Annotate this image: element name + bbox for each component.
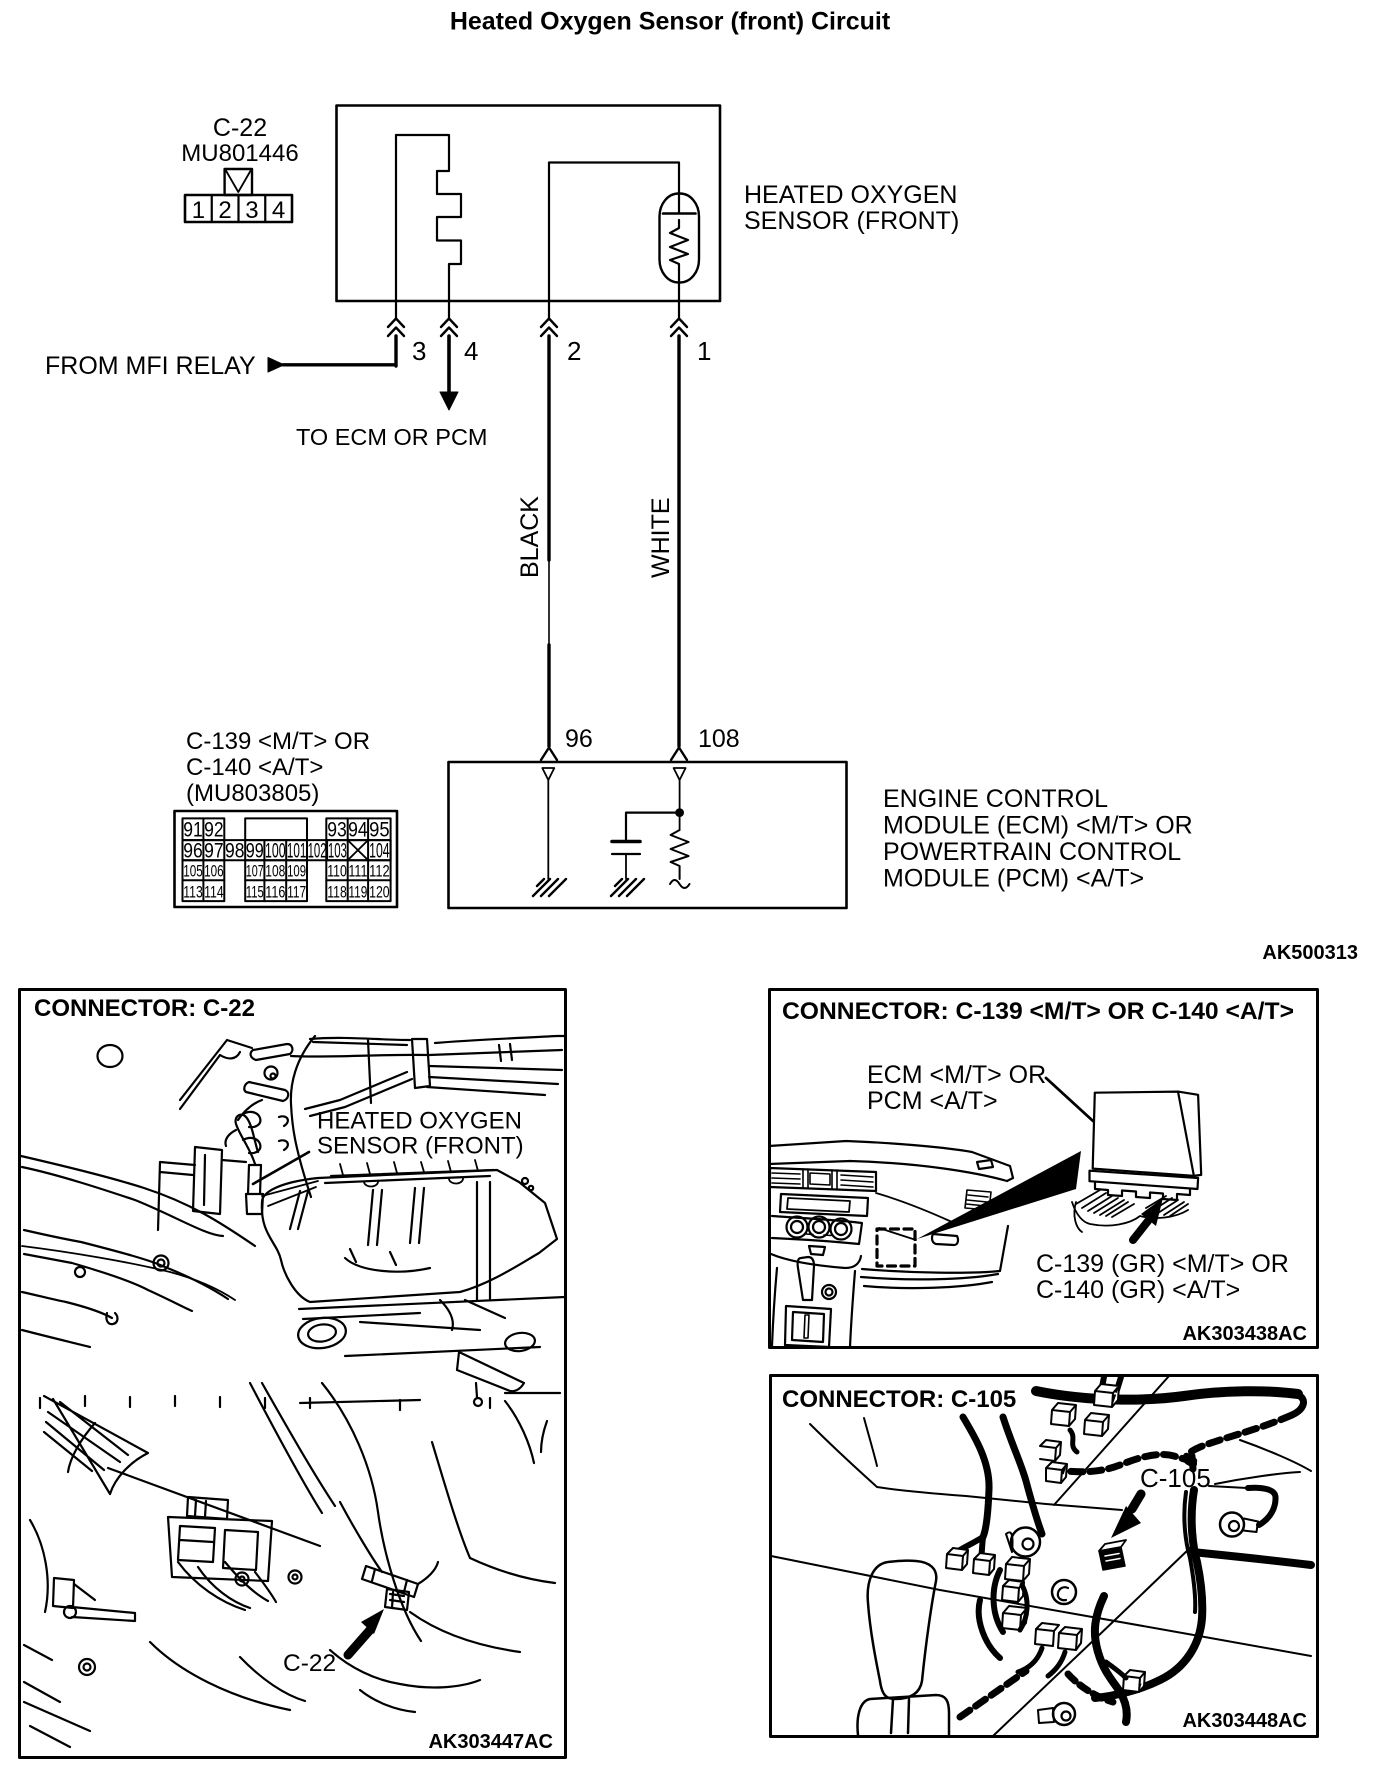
svg-text:114: 114 (204, 883, 224, 902)
svg-text:96: 96 (183, 839, 203, 863)
svg-text:1: 1 (192, 197, 205, 224)
svg-text:4: 4 (464, 336, 478, 366)
svg-text:C-140 (GR) <A/T>: C-140 (GR) <A/T> (1036, 1276, 1240, 1304)
svg-text:4: 4 (272, 197, 285, 224)
svg-text:ENGINE CONTROL: ENGINE CONTROL (883, 785, 1108, 813)
svg-text:Heated Oxygen Sensor (front) C: Heated Oxygen Sensor (front) Circuit (450, 8, 891, 36)
svg-text:(MU803805): (MU803805) (186, 780, 319, 807)
svg-text:108: 108 (698, 725, 740, 753)
svg-text:C-105: C-105 (1140, 1463, 1211, 1493)
svg-text:1: 1 (697, 336, 711, 366)
svg-text:106: 106 (204, 862, 224, 881)
svg-text:100: 100 (265, 839, 286, 863)
svg-text:109: 109 (287, 862, 306, 881)
svg-text:118: 118 (327, 883, 347, 902)
svg-text:107: 107 (246, 862, 264, 881)
svg-text:BLACK: BLACK (516, 496, 544, 578)
svg-text:119: 119 (348, 883, 367, 902)
svg-text:CONNECTOR: C-105: CONNECTOR: C-105 (782, 1386, 1016, 1413)
svg-text:98: 98 (225, 839, 245, 863)
svg-text:97: 97 (204, 839, 224, 863)
svg-text:116: 116 (265, 883, 285, 902)
svg-text:C-140 <A/T>: C-140 <A/T> (186, 754, 323, 781)
svg-text:MODULE (PCM) <A/T>: MODULE (PCM) <A/T> (883, 865, 1144, 893)
svg-text:99: 99 (246, 839, 264, 863)
svg-text:AK500313: AK500313 (1262, 942, 1358, 964)
svg-text:102: 102 (308, 839, 327, 863)
svg-text:C-139 <M/T> OR: C-139 <M/T> OR (186, 728, 370, 755)
svg-text:AK303438AC: AK303438AC (1182, 1323, 1307, 1345)
svg-text:C-139 (GR) <M/T> OR: C-139 (GR) <M/T> OR (1036, 1250, 1289, 1278)
svg-text:HEATED OXYGEN: HEATED OXYGEN (744, 181, 957, 209)
svg-text:AK303448AC: AK303448AC (1182, 1710, 1307, 1732)
svg-text:C-22: C-22 (283, 1650, 336, 1677)
svg-text:94: 94 (348, 818, 368, 842)
svg-text:MODULE (ECM) <M/T> OR: MODULE (ECM) <M/T> OR (883, 812, 1193, 840)
svg-text:TO ECM OR PCM: TO ECM OR PCM (296, 424, 488, 450)
svg-text:3: 3 (245, 197, 258, 224)
svg-text:HEATED OXYGEN: HEATED OXYGEN (317, 1108, 522, 1135)
svg-text:111: 111 (348, 862, 367, 881)
svg-text:MU801446: MU801446 (181, 140, 298, 167)
svg-text:104: 104 (369, 839, 390, 863)
svg-text:115: 115 (246, 883, 264, 902)
svg-text:PCM <A/T>: PCM <A/T> (867, 1087, 998, 1115)
svg-text:120: 120 (369, 883, 390, 902)
svg-text:SENSOR (FRONT): SENSOR (FRONT) (744, 207, 959, 235)
svg-text:C-22: C-22 (213, 114, 267, 142)
svg-text:117: 117 (287, 883, 306, 902)
svg-text:FROM MFI RELAY: FROM MFI RELAY (45, 352, 256, 380)
svg-text:WHITE: WHITE (647, 497, 675, 578)
svg-text:113: 113 (183, 883, 203, 902)
svg-text:2: 2 (567, 336, 581, 366)
svg-text:3: 3 (412, 336, 426, 366)
svg-text:SENSOR (FRONT): SENSOR (FRONT) (317, 1133, 524, 1160)
svg-text:103: 103 (328, 839, 347, 863)
svg-text:112: 112 (369, 862, 390, 881)
svg-text:ECM <M/T> OR: ECM <M/T> OR (867, 1061, 1046, 1089)
svg-text:2: 2 (218, 197, 231, 224)
svg-text:105: 105 (183, 862, 203, 881)
svg-text:POWERTRAIN CONTROL: POWERTRAIN CONTROL (883, 838, 1181, 866)
svg-text:96: 96 (565, 725, 593, 753)
svg-text:AK303447AC: AK303447AC (428, 1731, 553, 1753)
svg-text:CONNECTOR: C-139 <M/T> OR C-14: CONNECTOR: C-139 <M/T> OR C-140 <A/T> (782, 998, 1294, 1025)
svg-text:CONNECTOR: C-22: CONNECTOR: C-22 (34, 995, 255, 1022)
svg-text:101: 101 (287, 839, 307, 863)
svg-text:110: 110 (327, 862, 347, 881)
svg-text:108: 108 (265, 862, 285, 881)
